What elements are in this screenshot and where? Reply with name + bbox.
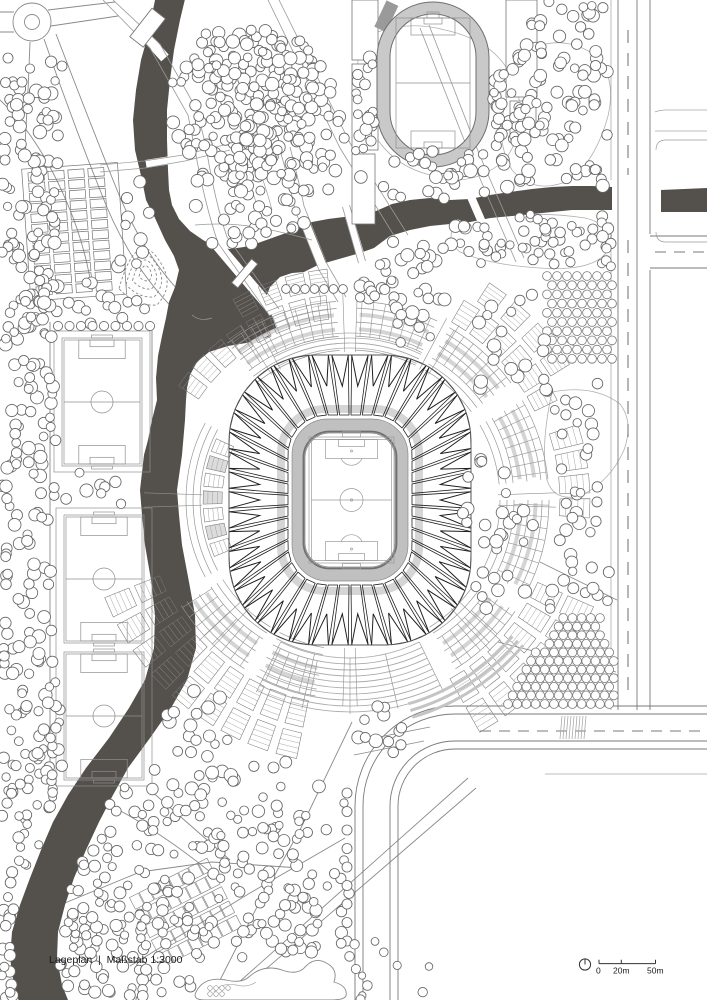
svg-text:0: 0 [596, 966, 601, 976]
svg-text:50m: 50m [647, 966, 664, 976]
svg-text:Lageplan | Maßstab 1:3000: Lageplan | Maßstab 1:3000 [49, 954, 183, 966]
svg-text:20m: 20m [613, 966, 630, 976]
